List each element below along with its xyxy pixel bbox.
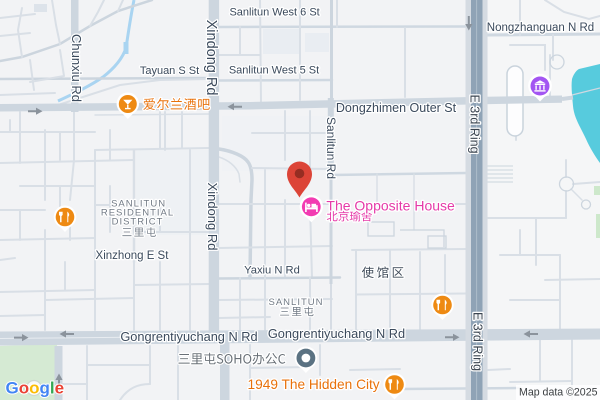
svg-text:Google: Google (6, 379, 65, 398)
svg-text:Gongrentiyuchang N Rd: Gongrentiyuchang N Rd (120, 329, 257, 344)
svg-text:Nongzhanguan N Rd: Nongzhanguan N Rd (487, 22, 594, 34)
svg-text:Dongzhimen Outer St: Dongzhimen Outer St (336, 101, 457, 115)
svg-text:The Opposite House: The Opposite House (326, 198, 455, 214)
svg-text:DISTRICT: DISTRICT (112, 217, 164, 228)
svg-text:Sanlitun West 6 St: Sanlitun West 6 St (229, 7, 319, 19)
svg-text:Gongrentiyuchang N Rd: Gongrentiyuchang N Rd (268, 326, 405, 341)
svg-text:Xinzhong E St: Xinzhong E St (96, 250, 170, 262)
svg-text:Xindong Rd: Xindong Rd (203, 20, 219, 96)
svg-text:Yaxiu N Rd: Yaxiu N Rd (244, 265, 300, 277)
svg-text:Sanlitun West 5 St: Sanlitun West 5 St (229, 64, 319, 76)
svg-text:Tayuan S St: Tayuan S St (140, 65, 199, 77)
svg-text:E 3rd Ring: E 3rd Ring (468, 94, 482, 153)
svg-text:Xindong Rd: Xindong Rd (205, 183, 220, 251)
svg-text:Sanlitun Rd: Sanlitun Rd (324, 117, 338, 179)
svg-text:1949 The Hidden City: 1949 The Hidden City (248, 377, 380, 392)
svg-text:Chunxiu Rd: Chunxiu Rd (69, 34, 84, 102)
svg-text:E 3rd Ring: E 3rd Ring (471, 312, 485, 371)
svg-text:Map data ©2025: Map data ©2025 (519, 386, 598, 398)
